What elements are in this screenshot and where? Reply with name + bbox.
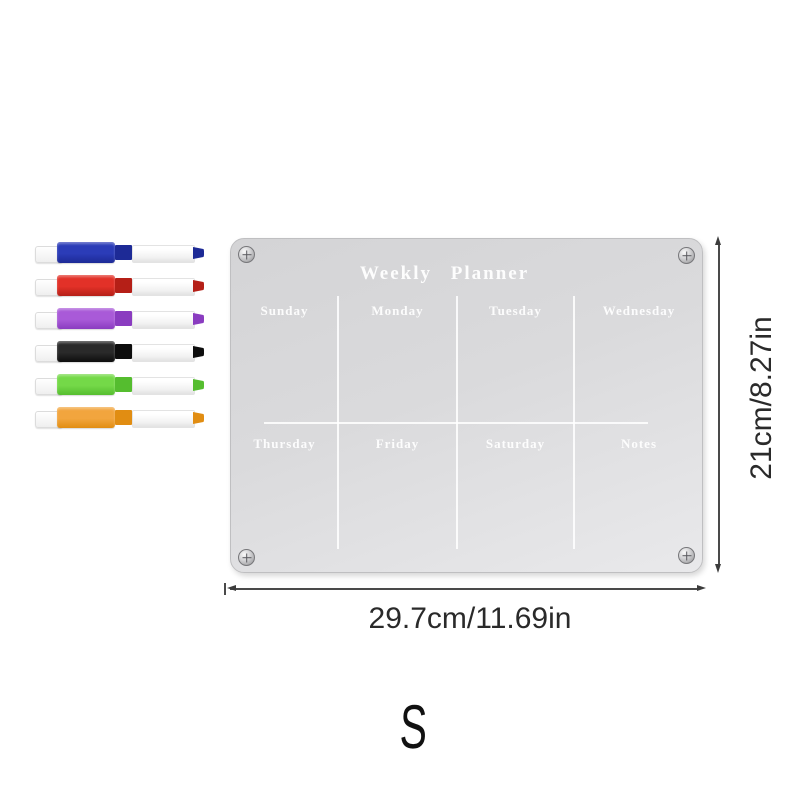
blue-marker-tip xyxy=(193,247,204,259)
red-marker-neck xyxy=(115,278,132,293)
orange-marker-tip xyxy=(193,412,204,424)
purple-marker xyxy=(35,308,197,330)
width-dimension-tick xyxy=(224,583,226,595)
size-label: S xyxy=(394,692,433,763)
purple-marker-neck xyxy=(115,311,132,326)
green-marker-neck xyxy=(115,377,132,392)
purple-marker-barrel xyxy=(132,311,195,329)
arrow-down-icon xyxy=(715,564,721,573)
day-label-friday: Friday xyxy=(338,436,457,452)
screw-bottom-left-icon xyxy=(238,549,255,566)
black-marker-tip xyxy=(193,346,204,358)
height-dimension-label: 21cm/8.27in xyxy=(745,288,779,508)
green-marker-tip xyxy=(193,379,204,391)
black-marker-cap xyxy=(57,341,115,362)
red-marker-cap xyxy=(57,275,115,296)
black-marker-barrel xyxy=(132,344,195,362)
arrow-up-icon xyxy=(715,236,721,245)
screw-bottom-right-icon xyxy=(678,547,695,564)
width-dimension-line xyxy=(230,588,698,590)
purple-marker-cap xyxy=(57,308,115,329)
blue-marker-neck xyxy=(115,245,132,260)
grid-horizontal-line xyxy=(264,422,648,424)
board-title: Weekly Planner xyxy=(231,263,702,285)
blue-marker-cap xyxy=(57,242,115,263)
blue-marker-barrel xyxy=(132,245,195,263)
width-dimension-label: 29.7cm/11.69in xyxy=(270,602,670,636)
green-marker-cap xyxy=(57,374,115,395)
orange-marker-cap xyxy=(57,407,115,428)
red-marker-tip xyxy=(193,280,204,292)
day-label-sunday: Sunday xyxy=(231,303,338,319)
day-label-saturday: Saturday xyxy=(457,436,574,452)
green-marker-barrel xyxy=(132,377,195,395)
day-label-monday: Monday xyxy=(338,303,457,319)
screw-top-left-icon xyxy=(238,246,255,263)
day-label-wednesday: Wednesday xyxy=(574,303,704,319)
orange-marker-neck xyxy=(115,410,132,425)
screw-top-right-icon xyxy=(678,247,695,264)
black-marker xyxy=(35,341,197,363)
arrow-right-icon xyxy=(697,585,706,591)
red-marker-barrel xyxy=(132,278,195,296)
blue-marker xyxy=(35,242,197,264)
orange-marker xyxy=(35,407,197,429)
green-marker xyxy=(35,374,197,396)
day-label-notes: Notes xyxy=(574,436,704,452)
red-marker xyxy=(35,275,197,297)
height-dimension-line xyxy=(718,243,720,566)
purple-marker-tip xyxy=(193,313,204,325)
acrylic-planner-board: Weekly Planner SundayMondayTuesdayWednes… xyxy=(230,238,703,573)
orange-marker-barrel xyxy=(132,410,195,428)
black-marker-neck xyxy=(115,344,132,359)
day-label-thursday: Thursday xyxy=(231,436,338,452)
day-label-tuesday: Tuesday xyxy=(457,303,574,319)
arrow-left-icon xyxy=(227,585,236,591)
